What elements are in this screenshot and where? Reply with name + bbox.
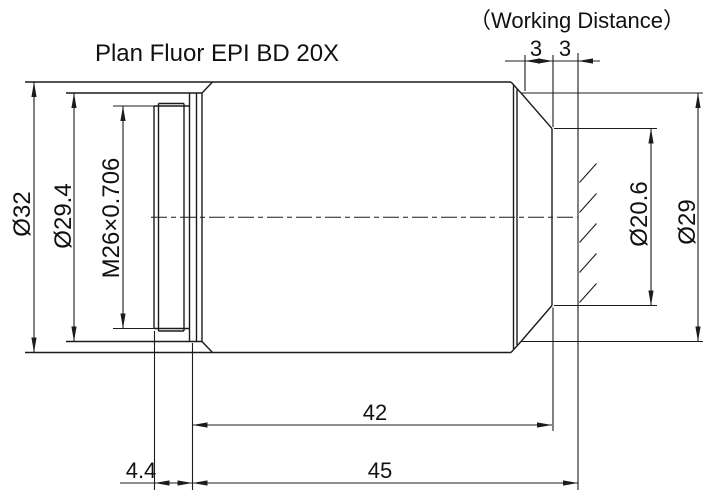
arrow-right	[537, 422, 552, 427]
arrow-down	[648, 291, 653, 306]
arrow-up	[120, 106, 125, 121]
arrow-down	[120, 314, 125, 329]
arrow-right-parfocal	[563, 480, 578, 485]
specimen-hatching	[580, 164, 597, 303]
dim-label-parfocal-length: 45	[368, 458, 392, 483]
arrow-up	[648, 129, 653, 144]
arrow-left-outside	[578, 58, 593, 63]
front-bottom-chamfer	[511, 342, 521, 353]
drawing-title: Plan Fluor EPI BD 20X	[95, 40, 339, 67]
arrow-left	[193, 422, 208, 427]
dim-body-diameter: Ø32	[9, 82, 37, 353]
rear-top-chamfer	[202, 82, 213, 93]
specimen-plane	[578, 53, 597, 490]
rear-bottom-chamfer	[202, 342, 213, 353]
objective-lens-technical-drawing: Plan Fluor EPI BD 20X （Working Distance）	[0, 0, 705, 504]
arrow-right-thread	[178, 480, 193, 485]
hatch-stroke	[580, 254, 597, 273]
drawing-canvas: Plan Fluor EPI BD 20X （Working Distance）	[0, 0, 705, 504]
arrow-down	[71, 327, 76, 342]
arrow-up	[71, 93, 76, 108]
arrow-down	[31, 338, 36, 353]
arrow-down	[695, 327, 700, 342]
dim-label-front-aperture: Ø20.6	[626, 181, 653, 246]
arrow-left-parfocal	[193, 480, 208, 485]
dim-label-flange-diameter: Ø29.4	[50, 183, 77, 248]
dim-label-thread-length: 4.4	[126, 458, 157, 483]
working-distance-label: （Working Distance）	[469, 8, 685, 33]
dim-working-distance-chain: 3 3	[505, 36, 600, 127]
cone-top-edge	[521, 93, 552, 129]
arrow-left-thread	[155, 480, 170, 485]
arrow-up	[695, 93, 700, 108]
hatch-stroke	[580, 284, 597, 303]
dim-label-wd-right: 3	[559, 36, 571, 61]
front-top-chamfer	[511, 82, 521, 93]
arrow-up	[31, 82, 36, 97]
dim-label-body-diameter: Ø32	[9, 191, 36, 236]
dim-label-shoulder-to-front: 42	[363, 400, 387, 425]
hatch-stroke	[580, 164, 597, 183]
dim-thread-spec: M26×0.706	[98, 106, 154, 329]
dim-thread-and-parfocal: 4.4 45	[120, 331, 578, 490]
cone-bottom-edge	[521, 306, 552, 342]
dim-shoulder-to-front: 42	[193, 308, 554, 432]
dim-label-wd-left: 3	[530, 36, 542, 61]
dim-label-nose-diameter: Ø29	[674, 199, 701, 244]
hatch-stroke	[580, 224, 597, 243]
hatch-stroke	[580, 194, 597, 213]
dim-flange-diameter: Ø29.4	[50, 93, 77, 342]
dim-label-thread-spec: M26×0.706	[98, 158, 125, 279]
